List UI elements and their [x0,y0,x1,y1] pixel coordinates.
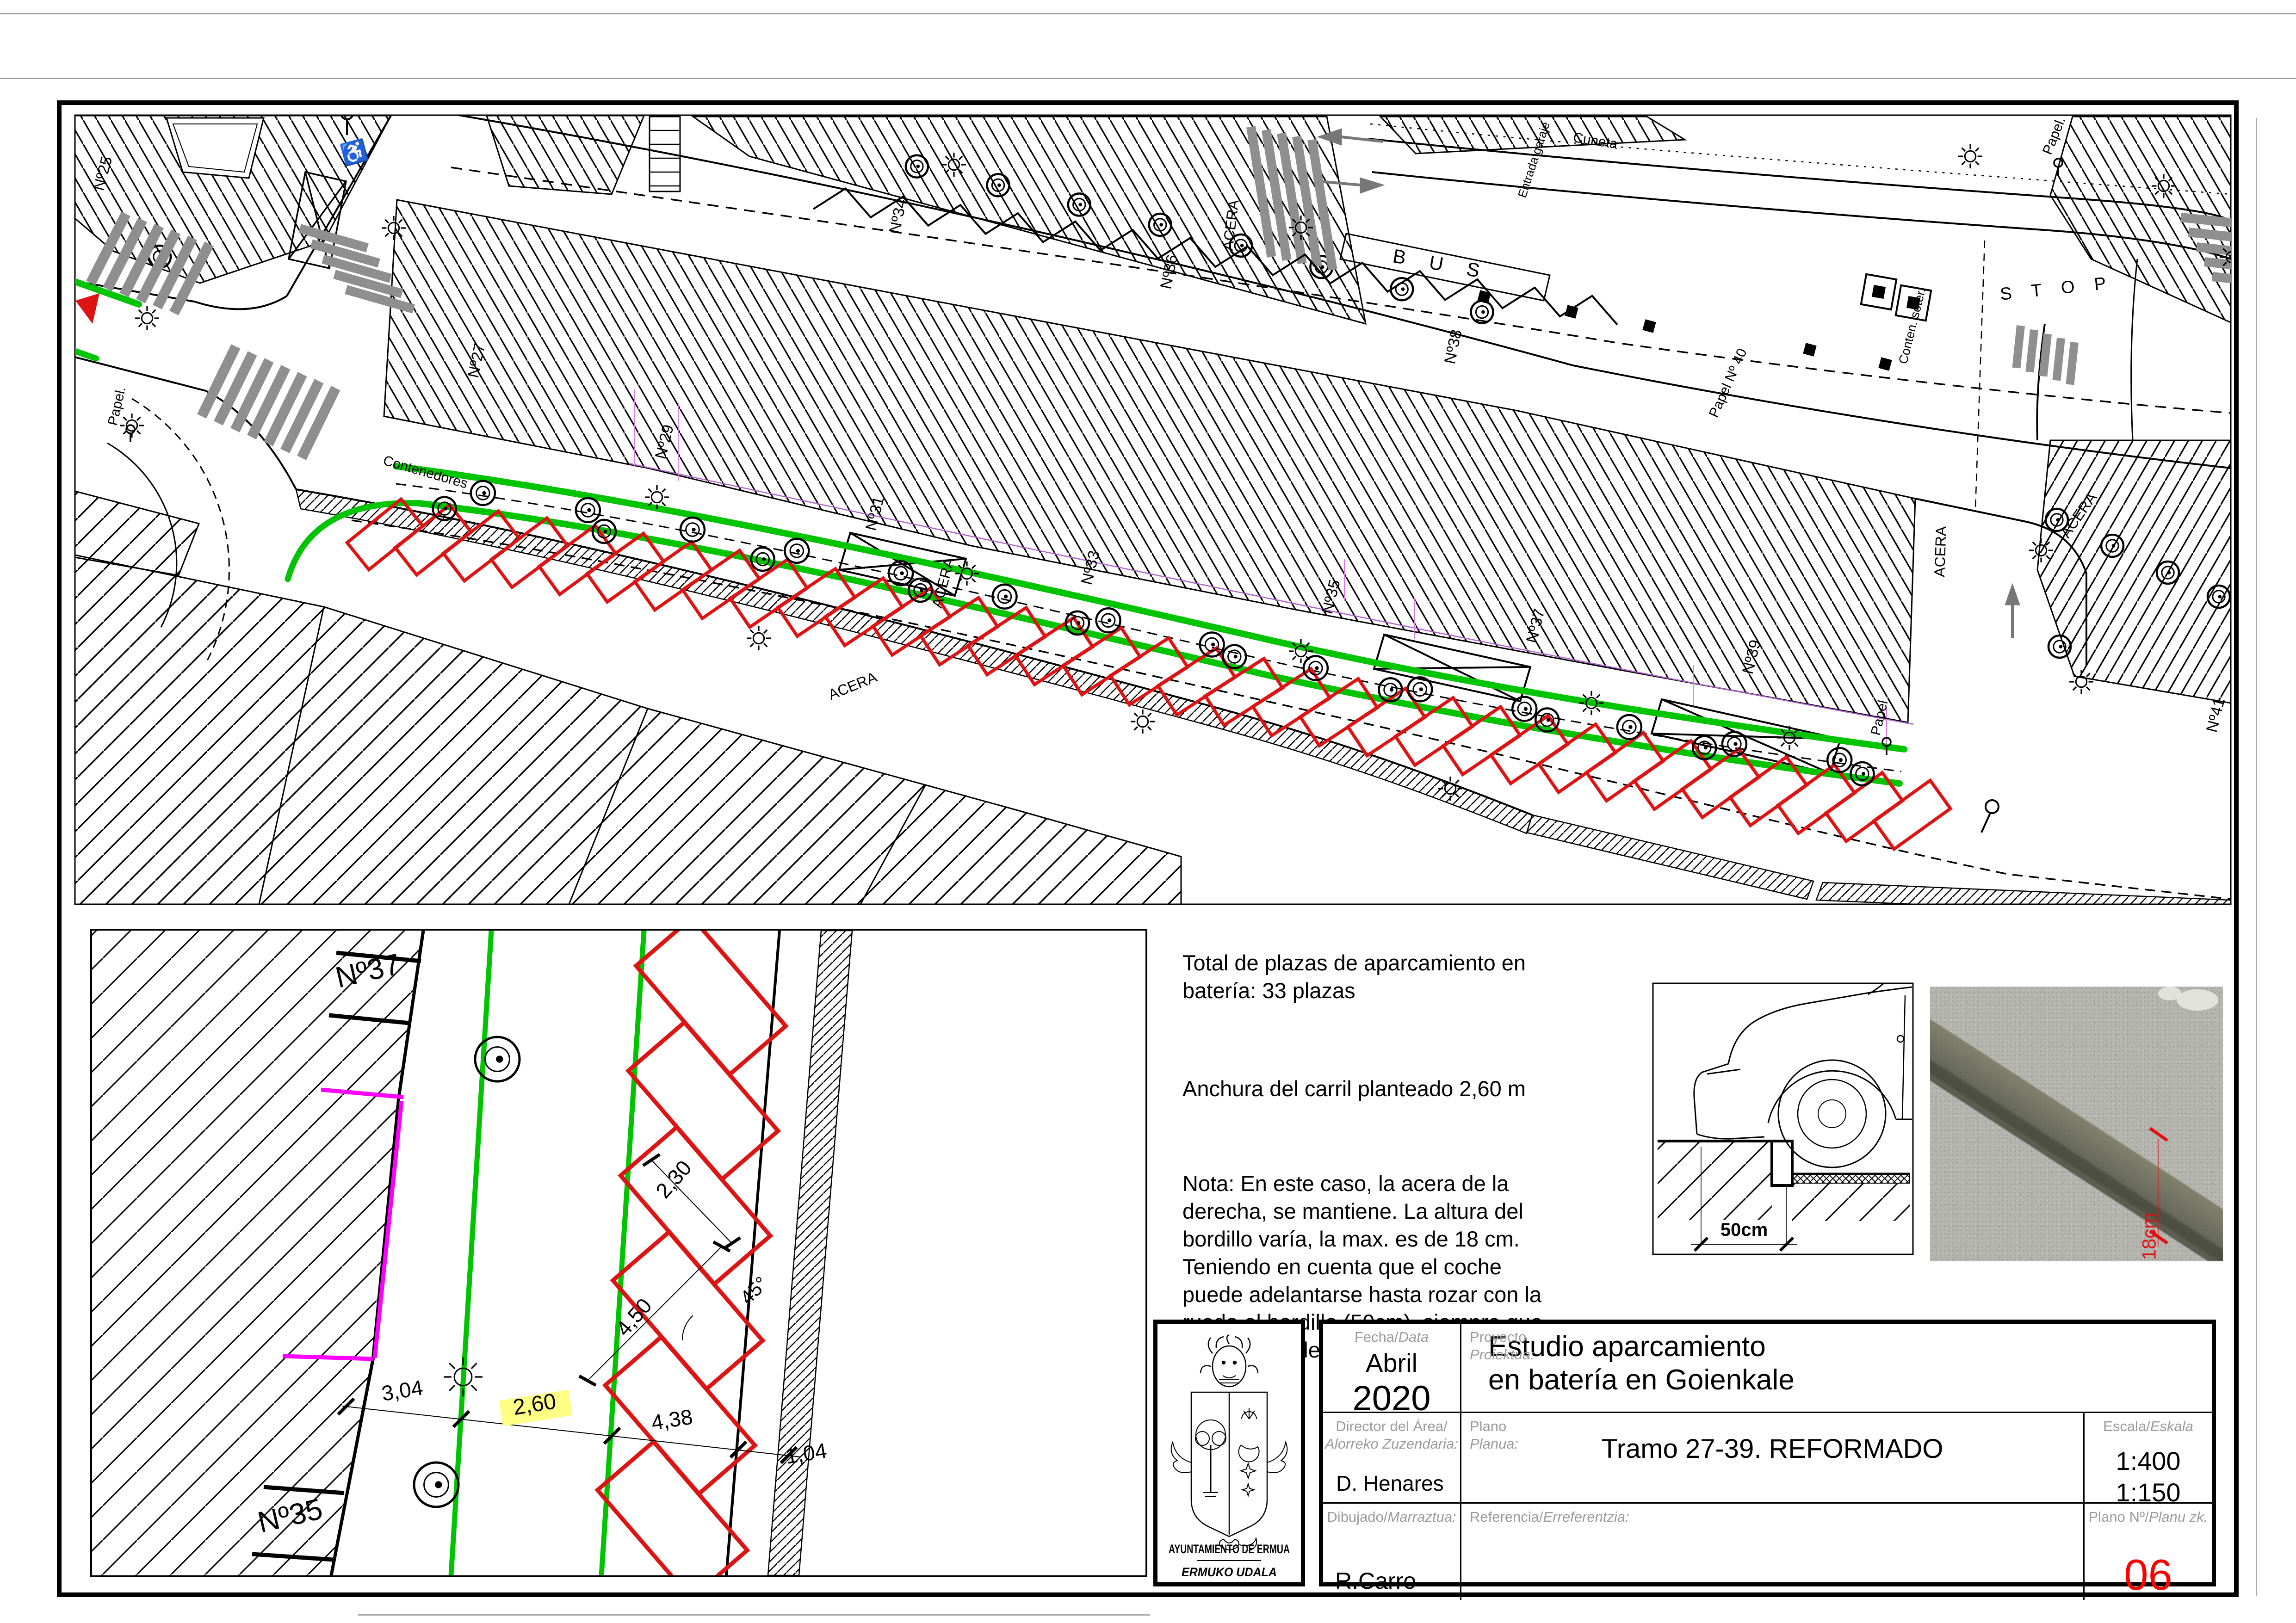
dibujado-label: Dibujado/ [1327,1509,1387,1525]
logo-box: AYUNTAMIENTO DE ERMUA ERMUKO UDALA [1153,1320,1305,1586]
fecha-cell: Fecha/Data Abril 2020 [1323,1324,1460,1412]
fecha-label: Fecha/ [1355,1329,1399,1345]
crosswalk-stripe [2070,342,2074,384]
note-total-plazas: Total de plazas de aparcamiento en bater… [1182,949,1654,1005]
crosswalk-stripe [2030,330,2034,372]
director-value: D. Henares [1336,1471,1444,1496]
title-table: Fecha/Data Abril 2020 Proyecto Proiektua… [1319,1320,2216,1586]
escala-label-eu: Eskala [2150,1418,2193,1434]
streetlight-icon [2220,245,2244,269]
fecha-month: Abril [1323,1349,1460,1377]
proyecto-label-eu: Proiektua: [1470,1346,1535,1364]
dibujado-cell: Dibujado/Marraztua: R.Carro [1323,1504,1460,1600]
photo-highlight [2177,989,2218,1011]
curb-photo: 18cm [1930,987,2223,1261]
acera-label: ACERA [1931,525,1949,577]
fecha-label-eu: Data [1399,1329,1429,1345]
plano-num-label-eu: Planu zk. [2149,1509,2208,1525]
car-dimension-label: 50cm [1720,1220,1768,1240]
photo-highlight [2158,987,2181,1000]
referencia-label: Referencia/ [1470,1509,1543,1525]
referencia-label-eu: Erreferentzia: [1543,1509,1629,1525]
director-label-eu: Alorreko Zuzendaria: [1325,1436,1458,1452]
note-anchura: Anchura del carril planteado 2,60 m [1182,1075,1654,1103]
plano-label: Plano [1470,1418,1518,1435]
proyecto-value: Estudio aparcamiento en batería en Goien… [1488,1330,2212,1397]
org-name-es: AYUNTAMIENTO DE ERMUA [1169,1542,1290,1556]
photo-dimension-label: 18cm [2138,1213,2160,1260]
proyecto-label: Proyecto [1470,1328,1535,1346]
crosswalk-stripe [2016,326,2021,368]
plano-label-eu: Planua: [1470,1435,1518,1453]
director-cell: Director del Área/Alorreko Zuzendaria: D… [1323,1413,1460,1502]
escala-value: 1:400 1:150 [2085,1445,2212,1508]
plano-value: Tramo 27-39. REFORMADO [1461,1433,2083,1464]
drawing-sheet: ♿ N [0,0,2296,1623]
title-block: AYUNTAMIENTO DE ERMUA ERMUKO UDALA Fecha… [1153,1320,2216,1586]
escala-label: Escala/ [2103,1418,2150,1434]
referencia-cell: Referencia/Erreferentzia: [1460,1504,2083,1600]
plano-num-label: Plano Nº/ [2089,1509,2149,1525]
crosswalk-stripe [2043,334,2048,376]
plano-num-cell: Plano Nº/Planu zk. 06 [2083,1504,2212,1600]
plano-num-value: 06 [2085,1550,2212,1600]
proyecto-cell: Proyecto Proiektua: Estudio aparcamiento… [1460,1324,2212,1412]
org-name-eu: ERMUKO UDALA [1182,1565,1277,1579]
ermua-coat-of-arms: AYUNTAMIENTO DE ERMUA ERMUKO UDALA [1157,1324,1301,1582]
dibujado-label-eu: Marraztua: [1387,1509,1456,1525]
crosswalk-stripe [2056,338,2061,380]
escala-cell: Escala/Eskala 1:400 1:150 [2083,1413,2212,1502]
plano-cell: Plano Planua: Tramo 27-39. REFORMADO [1460,1413,2083,1502]
director-label: Director del Área/ [1336,1418,1447,1434]
dibujado-value: R.Carro [1335,1567,1416,1594]
